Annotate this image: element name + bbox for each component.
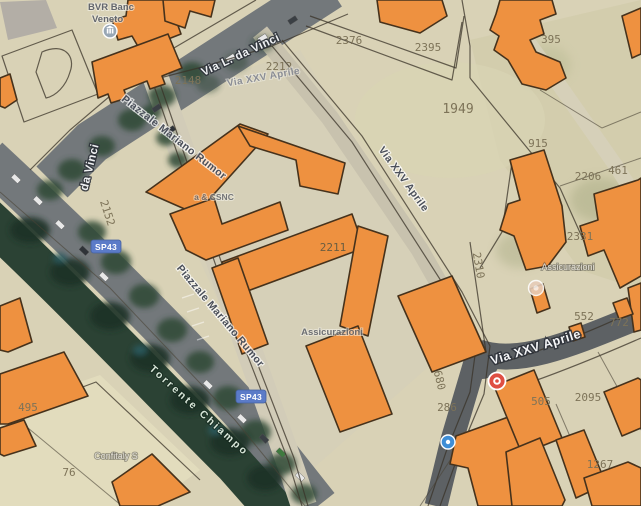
poi-label-assicurazioni-central[interactable]: Assicurazioni bbox=[301, 327, 363, 338]
parcel-number-915: 915 bbox=[528, 137, 548, 150]
parcel-number-772: 772 bbox=[609, 316, 629, 329]
map-canvas[interactable]: 2148 2212 2376 2395 1949 395 915 2206 46… bbox=[0, 0, 641, 506]
parcel-number-2095: 2095 bbox=[575, 391, 602, 404]
parcel-number-495: 495 bbox=[18, 401, 38, 414]
sp43-shield-text: SP43 bbox=[95, 242, 117, 252]
poi-label-bank-line2[interactable]: Veneto bbox=[92, 14, 123, 25]
parcel-number-2395: 2395 bbox=[415, 41, 442, 54]
parcel-number-2148: 2148 bbox=[175, 74, 202, 87]
poi-label-bank-line1[interactable]: BVR Banc bbox=[88, 2, 134, 13]
parcel-number-2376: 2376 bbox=[336, 34, 363, 47]
sp43-shield-upper: SP43 bbox=[91, 240, 121, 253]
parcel-number-1949: 1949 bbox=[442, 102, 473, 117]
poi-label-business-csnc[interactable]: a & CSNC bbox=[194, 192, 234, 202]
parcel-number-2331: 2331 bbox=[567, 230, 594, 243]
bank-poi-icon[interactable] bbox=[103, 24, 117, 38]
parcel-number-1267: 1267 bbox=[587, 458, 614, 471]
map-viewport[interactable]: 2148 2212 2376 2395 1949 395 915 2206 46… bbox=[0, 0, 641, 506]
sp43-shield-text: SP43 bbox=[240, 392, 262, 402]
poi-label-confitaly[interactable]: Confitaly S bbox=[94, 451, 138, 461]
parcel-number-2206: 2206 bbox=[575, 170, 602, 183]
parcel-number-461: 461 bbox=[608, 164, 628, 177]
parcel-number-286: 286 bbox=[437, 401, 457, 414]
blue-poi-icon[interactable] bbox=[441, 435, 455, 449]
poi-label-assicurazioni-right[interactable]: Assicurazioni bbox=[541, 262, 594, 272]
pale-poi-icon[interactable] bbox=[529, 281, 544, 296]
parcel-number-505: 505 bbox=[531, 395, 551, 408]
parcel-number-552: 552 bbox=[574, 310, 594, 323]
sp43-shield-lower: SP43 bbox=[236, 390, 266, 403]
parcel-number-2211: 2211 bbox=[320, 241, 347, 254]
red-poi-icon[interactable] bbox=[489, 373, 506, 390]
parcel-number-395: 395 bbox=[541, 33, 561, 46]
parcel-number-76: 76 bbox=[62, 466, 75, 479]
